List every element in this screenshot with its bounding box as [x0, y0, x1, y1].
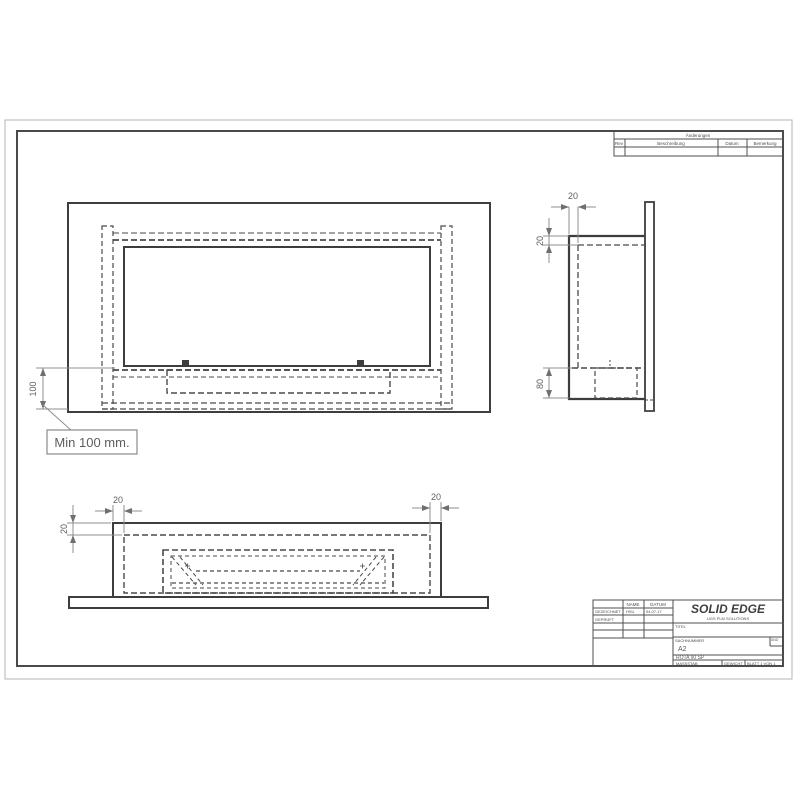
- titleblock-title-label: TITEL: [675, 624, 687, 629]
- min-clearance-callout: Min 100 mm.: [47, 430, 137, 454]
- callout-text: Min 100 mm.: [54, 435, 129, 450]
- titleblock-weight-label: GEWICHT: [724, 661, 743, 666]
- side-dim-top-value: 20: [568, 191, 578, 201]
- bottom-dim-left-side-value: 20: [59, 524, 69, 534]
- revision-col-description: Beschreibung: [657, 141, 685, 146]
- drawing-sheet-page: 100 Min 100 mm. 20 20: [0, 0, 800, 800]
- revision-col-note: Bemerkung: [753, 141, 777, 146]
- cad-drawing: 100 Min 100 mm. 20 20: [0, 0, 800, 800]
- titleblock-row-checked-label: GEPRÜFT: [595, 617, 615, 622]
- side-dim-left-value: 20: [535, 236, 545, 246]
- front-clip-left: [182, 360, 189, 366]
- titleblock-row-drawn-name: HSU: [626, 609, 635, 614]
- side-dim-bottom-value: 80: [535, 379, 545, 389]
- revision-col-date: Datum: [725, 141, 739, 146]
- front-dim-height-value: 100: [28, 381, 38, 396]
- titleblock-col-name: NAME: [626, 602, 639, 607]
- titleblock-partno-value: A2: [678, 646, 687, 653]
- titleblock-rev-label: ÄND: [771, 638, 779, 642]
- bottom-dim-right-top-value: 20: [431, 492, 441, 502]
- titleblock-scale-label: MASSSTAB: [676, 661, 698, 666]
- titleblock-row-drawn-date: 04.07.17: [646, 609, 662, 614]
- titleblock-col-date: DATUM: [650, 602, 666, 607]
- solid-edge-logo-subtitle: UGS PLM SOLUTIONS: [707, 616, 750, 621]
- front-clip-right: [357, 360, 364, 366]
- titleblock-row-drawn-label: GEZEICHNET: [595, 609, 621, 614]
- revision-col-rev: Rev: [615, 141, 624, 146]
- revision-table-title: Änderungen: [686, 132, 711, 138]
- titleblock-partno-label: SACHNUMMER: [675, 638, 704, 643]
- titleblock-sheet-label: BLATT 1 VON 1: [747, 661, 776, 666]
- solid-edge-logo: SOLID EDGE: [691, 602, 766, 616]
- bottom-dim-left-top-value: 20: [113, 495, 123, 505]
